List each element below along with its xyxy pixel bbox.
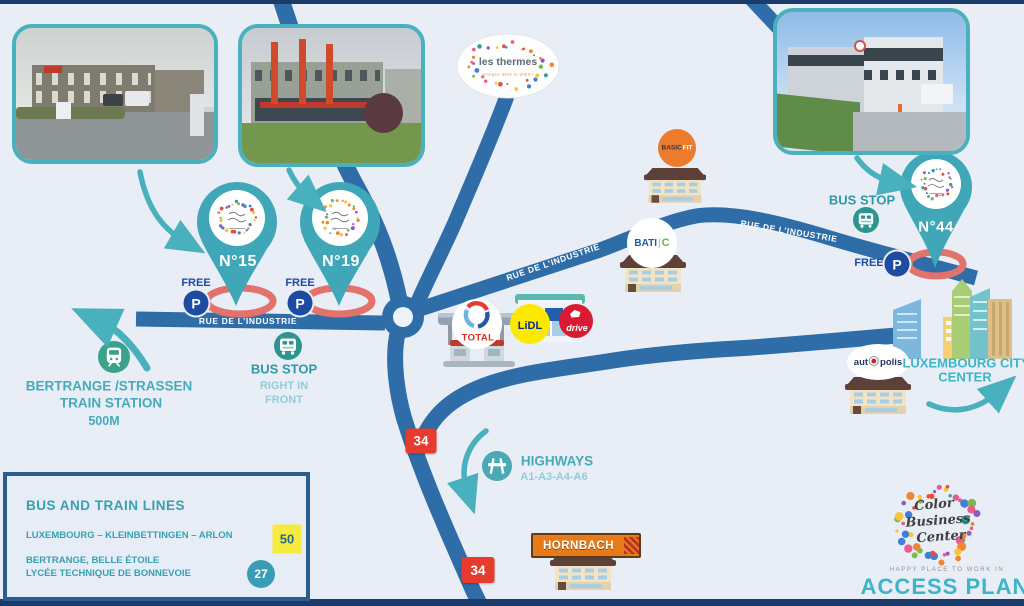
autopolis-dot-icon: [869, 356, 879, 366]
pin-label-n15: N°15: [219, 253, 257, 271]
pin-label-n44: N°44: [918, 219, 954, 236]
bus-stop-center-title: BUS STOP: [251, 362, 317, 377]
bati-c-logo: BATI|C: [634, 237, 669, 249]
city-skyline-illustration: [893, 279, 1012, 359]
bus-stop-icon-center: [274, 332, 302, 360]
autopolis-building: [845, 377, 911, 414]
route-sign-34: 34: [462, 557, 495, 583]
legend-bus-train-lines: BUS AND TRAIN LINES LUXEMBOURG – KLEINBE…: [3, 472, 310, 601]
arrow-to-pin44: [857, 158, 893, 182]
autopolis-part2: polis: [880, 357, 902, 368]
basic-fit-logo: BASICFIT: [662, 145, 693, 152]
arrow-to-city-center: [929, 392, 998, 410]
bati-c-part2: C: [662, 237, 670, 249]
train-station-icon: [98, 341, 130, 373]
hornbach-logo: HORNBACH: [531, 533, 641, 558]
highways-subtitle: A1-A3-A4-A6: [520, 471, 587, 483]
access-plan-title: ACCESS PLAN: [861, 574, 1024, 600]
street-label-west: RUE DE L’INDUSTRIE: [199, 316, 297, 326]
parking-icon: P: [182, 289, 211, 318]
roundabout: [382, 296, 424, 338]
hornbach-pattern-icon: [624, 537, 639, 554]
train-station-line3: 500M: [88, 414, 119, 428]
bati-c-divider: |: [658, 238, 661, 249]
total-globe-icon: [465, 303, 489, 327]
bus-stop-icon-n44: [853, 207, 879, 233]
highways-title: HIGHWAYS: [521, 454, 593, 469]
legend-row2-label-line2: LYCÉE TECHNIQUE DE BONNEVOIE: [26, 568, 191, 579]
legend-line-50-badge: 50: [273, 525, 302, 554]
arrow-to-highways: [464, 431, 486, 491]
pin-label-n19: N°19: [322, 253, 360, 271]
autopolis-logo: autpolis: [854, 356, 902, 368]
top-border: [0, 0, 1024, 4]
bus-stop-center-line1: RIGHT IN: [260, 380, 308, 392]
bus-stop-center-line2: FRONT: [265, 394, 303, 406]
brand-tagline: HAPPY PLACE TO WORK IN: [890, 567, 1005, 573]
arrow-to-pin19: [289, 170, 308, 196]
free-parking-label: FREE: [854, 257, 883, 269]
train-station-line1: BERTRANGE /STRASSEN: [26, 379, 193, 394]
route-sign-34: 34: [406, 429, 437, 454]
store-buildings: [550, 168, 911, 590]
parking-letter: P: [892, 256, 901, 272]
les-thermes-subtitle: plongez dans le plaisir: [482, 72, 533, 77]
map-pin-n44: [900, 151, 972, 268]
road-les-thermes: [417, 96, 507, 304]
parking-icon: P: [883, 250, 912, 279]
parking-letter: P: [295, 295, 304, 311]
train-station-line2: TRAIN STATION: [60, 396, 162, 411]
parking-letter: P: [191, 295, 200, 311]
city-center-line2: CENTER: [938, 370, 991, 385]
bus-stop-n44-title: BUS STOP: [829, 193, 895, 208]
basic-fit-part2: FIT: [683, 145, 693, 152]
access-plan-map: RUE DE L’INDUSTRIE RUE DE L’INDUSTRIE RU…: [0, 0, 1024, 606]
lidl-logo-text: LiDL: [518, 320, 542, 332]
basic-fit-building: [644, 168, 706, 203]
legend-line-27-badge: 27: [247, 560, 275, 588]
parking-icon: P: [286, 289, 315, 318]
legend-row2-label-line1: BERTRANGE, BELLE ÉTOILE: [26, 555, 159, 566]
les-thermes-name: les thermes: [479, 56, 537, 68]
highway-icon: [482, 451, 512, 481]
photo-building-n19: [238, 24, 425, 167]
hornbach-building: [550, 553, 616, 590]
legend-row1-label: LUXEMBOURG – KLEINBETTINGEN – ARLON: [26, 530, 233, 541]
bati-c-part1: BATI: [634, 238, 657, 249]
photo-building-n15: [12, 24, 218, 164]
free-parking-label: FREE: [285, 277, 314, 289]
free-parking-label: FREE: [181, 277, 210, 289]
photo-building-n44: [773, 8, 970, 155]
basic-fit-part1: BASIC: [662, 145, 682, 152]
drive-logo-text: drive: [566, 323, 588, 333]
total-logo-text: TOTAL: [462, 333, 495, 344]
autopolis-part1: aut: [854, 357, 868, 368]
arrow-to-pin15: [140, 172, 184, 241]
hornbach-text: HORNBACH: [533, 540, 624, 552]
legend-title: BUS AND TRAIN LINES: [26, 498, 185, 513]
city-center-line1: LUXEMBOURG CITY: [902, 356, 1024, 371]
